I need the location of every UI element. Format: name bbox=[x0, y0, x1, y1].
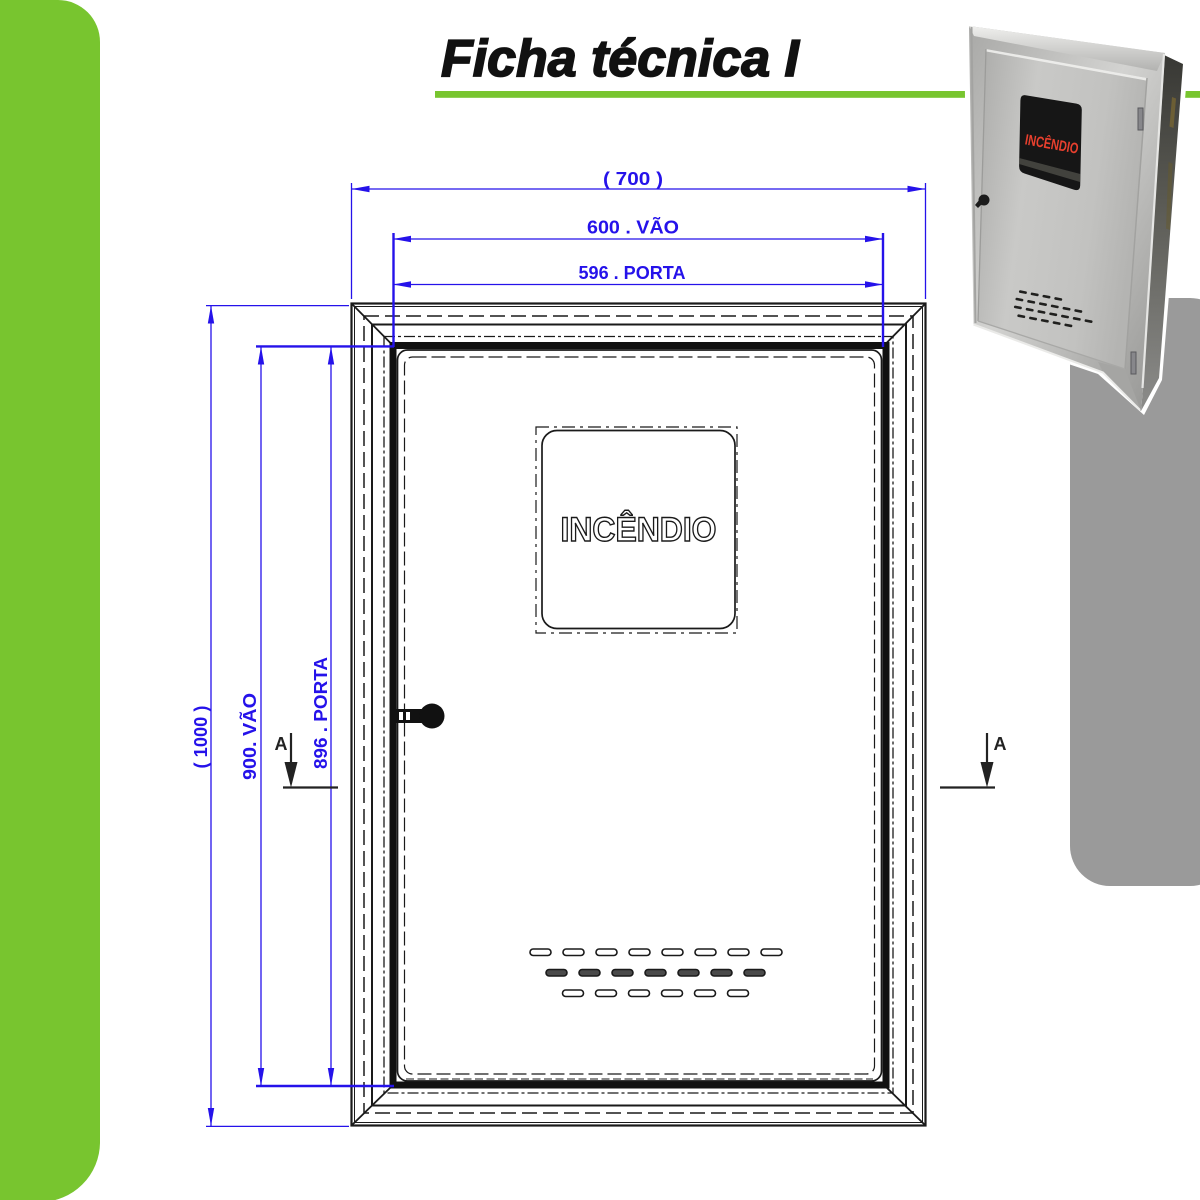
svg-text:INCÊNDIO: INCÊNDIO bbox=[561, 511, 717, 549]
svg-text:A: A bbox=[994, 734, 1007, 754]
svg-text:896 . PORTA: 896 . PORTA bbox=[311, 657, 331, 769]
svg-text:600 . VÃO: 600 . VÃO bbox=[587, 217, 679, 238]
svg-text:596 . PORTA: 596 . PORTA bbox=[579, 263, 686, 283]
svg-text:900. VÃO: 900. VÃO bbox=[239, 693, 260, 780]
svg-text:Ficha técnica I: Ficha técnica I bbox=[441, 30, 801, 88]
svg-text:A: A bbox=[275, 734, 288, 754]
svg-text:( 700 ): ( 700 ) bbox=[603, 169, 663, 189]
svg-text:( 1000 ): ( 1000 ) bbox=[191, 706, 211, 769]
